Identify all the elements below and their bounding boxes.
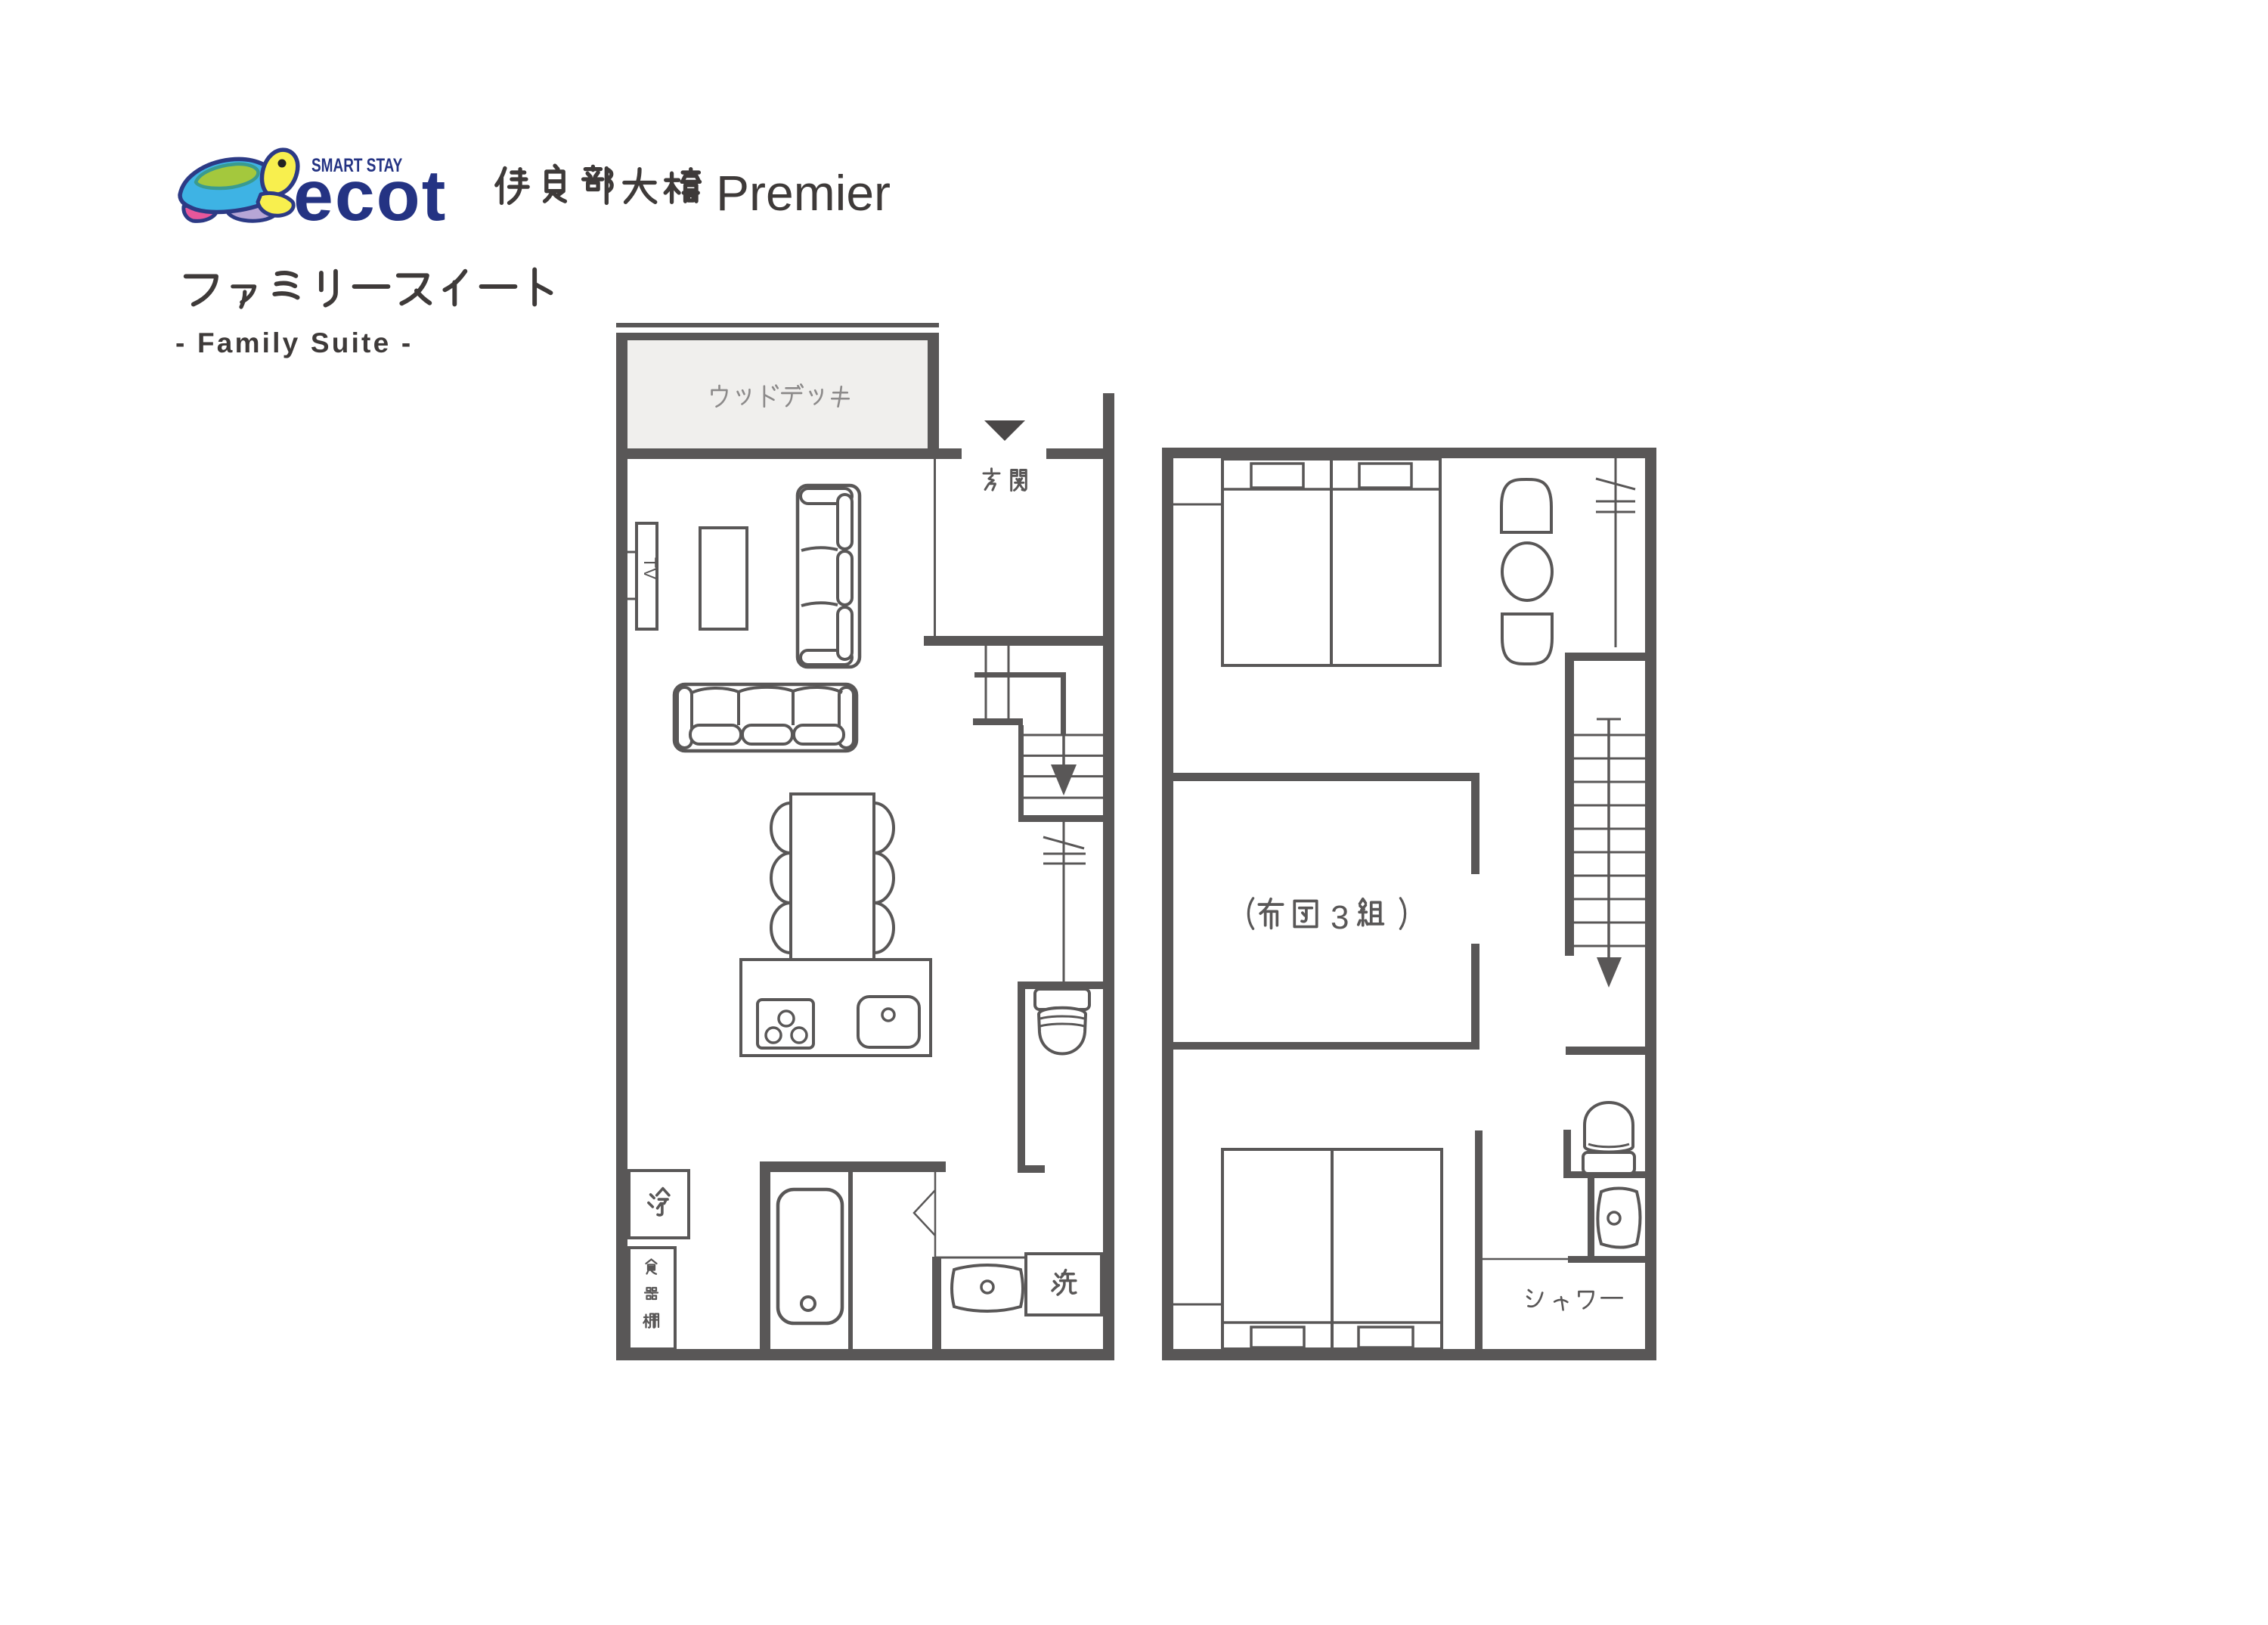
svg-text:ecot: ecot	[293, 156, 447, 236]
svg-text:Premier: Premier	[716, 165, 891, 221]
svg-text:TV: TV	[640, 557, 660, 580]
svg-text:3: 3	[1331, 899, 1349, 936]
svg-text:- Family Suite -: - Family Suite -	[175, 327, 413, 358]
